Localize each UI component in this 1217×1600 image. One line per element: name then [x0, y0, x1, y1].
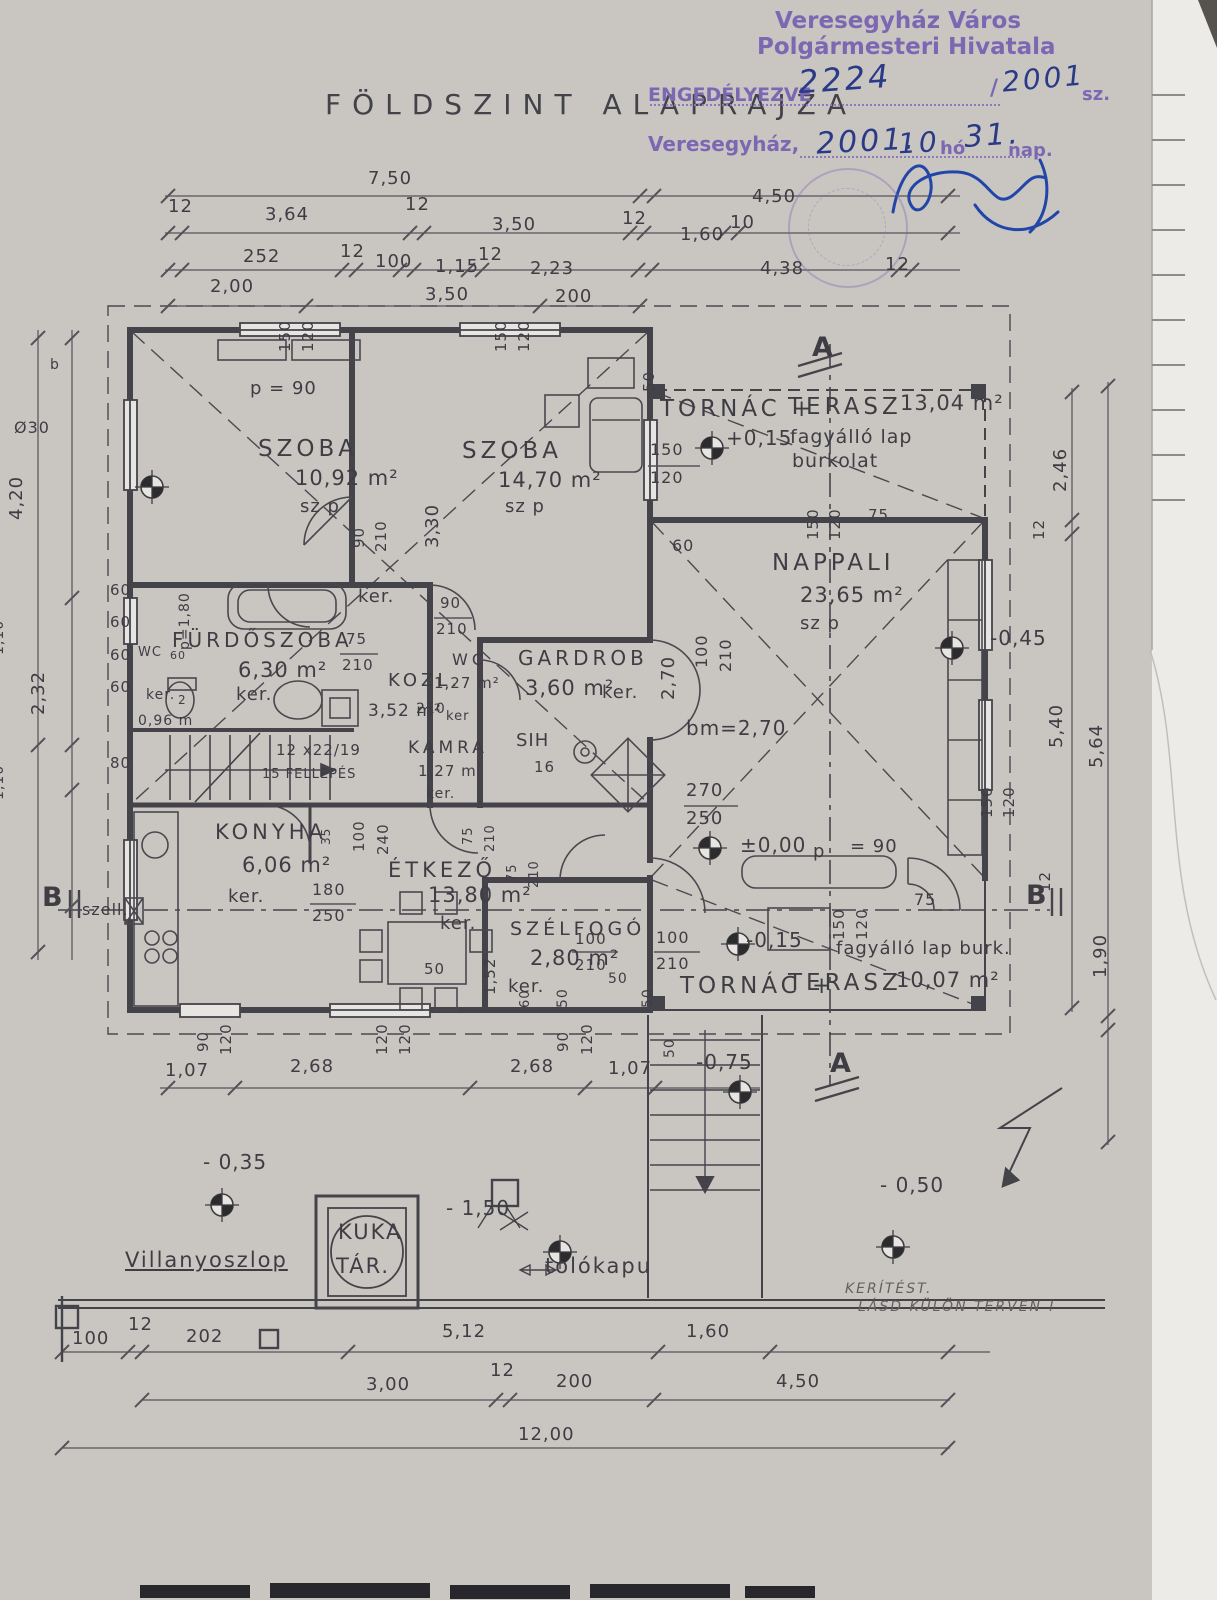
site-features — [56, 1088, 1105, 1362]
benchmark-symbols — [135, 431, 969, 1269]
kitchen-sink — [142, 832, 168, 858]
fireplace — [591, 738, 665, 812]
stamp-permit-label: ENGEDÉLYEZVE — [648, 84, 812, 106]
dimension-ticks — [31, 189, 1115, 1455]
wall-unit — [948, 560, 982, 855]
floor-plan-drawing — [0, 0, 1217, 1600]
stamp-month-word: hó — [940, 138, 965, 159]
dotted-leader — [650, 104, 1000, 106]
stamp-place: Veresegyház, — [648, 132, 799, 156]
exterior-stair — [648, 1015, 762, 1298]
interior-stair — [165, 733, 335, 802]
stamp-day-word: nap. — [1008, 140, 1053, 161]
sofa — [742, 856, 896, 888]
second-sheet-edge — [1150, 0, 1217, 1600]
gate-arrows — [520, 1265, 556, 1275]
stamp-permit-suffix: sz. — [1082, 84, 1110, 105]
washing-machine — [322, 690, 358, 726]
scan-cutoff-text — [140, 1583, 815, 1599]
walls — [130, 330, 985, 1010]
stamp-permit-slash: / — [990, 76, 998, 101]
toilet — [166, 682, 194, 718]
dimension-chains — [31, 189, 1115, 1455]
permit-number-handwritten: 2224 — [797, 57, 893, 101]
door-swings — [265, 497, 705, 913]
round-seal — [788, 168, 908, 288]
stamp-office-line2: Polgármesteri Hivatala — [757, 34, 1056, 60]
dashed-projection-lines — [108, 306, 1010, 1034]
dining-table — [388, 922, 466, 984]
round-seal-inner — [808, 188, 886, 266]
washbasin — [274, 681, 322, 719]
kitchen-counter — [134, 812, 178, 1006]
stamp-office-line1: Veresegyház Város — [775, 8, 1021, 34]
scanned-floor-plan-sheet: FÖLDSZINT ALAPRAJZA Veresegyház Város Po… — [0, 0, 1217, 1600]
